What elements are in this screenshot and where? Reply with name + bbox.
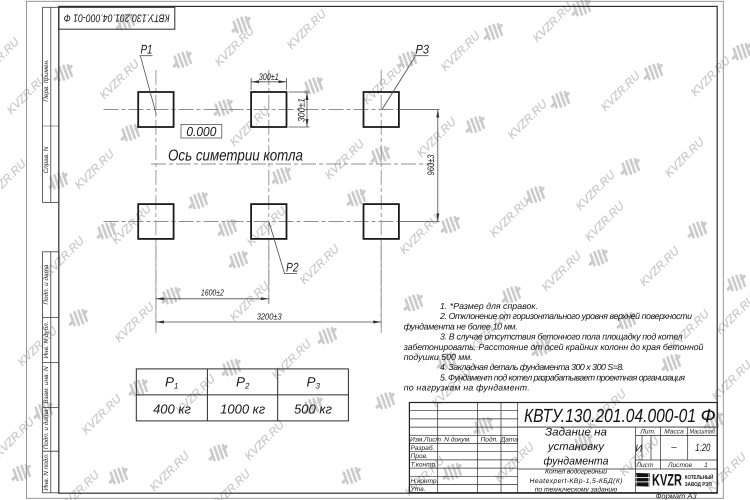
svg-text:Разраб.: Разраб. <box>411 445 435 452</box>
svg-text:–: – <box>670 442 677 453</box>
svg-text:P3: P3 <box>416 43 430 57</box>
svg-text:по нагрузкам на фундамент.: по нагрузкам на фундамент. <box>404 383 530 393</box>
svg-text:Масштаб: Масштаб <box>690 429 716 436</box>
svg-text:Ось симетрии котла: Ось симетрии котла <box>168 148 303 165</box>
svg-text:Листов: Листов <box>667 462 693 469</box>
svg-text:Подп. и дата: Подп. и дата <box>43 264 50 304</box>
svg-text:Изм.Лист: Изм.Лист <box>410 437 442 444</box>
svg-text:1:20: 1:20 <box>695 442 710 454</box>
svg-text:3. В случае отсутствия бетонн: 3. В случае отсутствия бетонного пола пл… <box>440 332 683 342</box>
svg-text:5. Фундамент под котел разраб: 5. Фундамент под котел разрабатывает про… <box>440 372 685 382</box>
svg-text:Лит.: Лит. <box>639 429 656 436</box>
svg-text:Формат А3: Формат А3 <box>655 491 697 500</box>
svg-text:Инв. N дубл.: Инв. N дубл. <box>43 322 50 359</box>
svg-text:забетонировать. Расстояние от: забетонировать. Расстояние от осей крайн… <box>403 342 704 352</box>
svg-text:Перв. примен.: Перв. примен. <box>43 59 50 101</box>
svg-text:P2: P2 <box>236 375 250 391</box>
svg-text:Лист: Лист <box>636 462 654 469</box>
svg-text:Т.контр.: Т.контр. <box>411 461 438 468</box>
svg-text:по техническому заданию: по техническому заданию <box>535 486 618 493</box>
svg-text:Heatexpert-КВр-1,5-КБД(К): Heatexpert-КВр-1,5-КБД(К) <box>530 478 623 485</box>
svg-text:Утв.: Утв. <box>410 486 426 493</box>
svg-text:Ф: Ф <box>700 406 715 427</box>
svg-text:Подп. и дата: Подп. и дата <box>43 409 50 449</box>
svg-text:960±3: 960±3 <box>426 154 437 176</box>
svg-text:Масса: Масса <box>664 429 684 436</box>
svg-text:Задание на: Задание на <box>545 427 607 439</box>
svg-text:Пров.: Пров. <box>411 453 429 460</box>
svg-text:Дата: Дата <box>500 437 519 444</box>
svg-text:500 кг: 500 кг <box>294 402 332 417</box>
svg-text:4. Закладная деталь фундамент: 4. Закладная деталь фундамента 300 x 300… <box>440 362 624 372</box>
svg-text:P3: P3 <box>307 375 321 391</box>
svg-text:фундамента не более 10 мм.: фундамента не более 10 мм. <box>404 321 518 331</box>
svg-text:ЗАВОД РЭП: ЗАВОД РЭП <box>685 482 712 488</box>
svg-text:КОТЕЛЬНЫЙ: КОТЕЛЬНЫЙ <box>685 473 714 481</box>
svg-text:установку: установку <box>547 441 606 453</box>
svg-text:1. *Размер для справок.: 1. *Размер для справок. <box>440 301 538 311</box>
svg-text:КВТУ.130.201.04.000-01 Ф: КВТУ.130.201.04.000-01 Ф <box>64 11 170 23</box>
svg-text:P1: P1 <box>165 375 178 391</box>
svg-text:2. Отклонение от горизонтальн: 2. Отклонение от горизонтального уровня … <box>439 311 692 321</box>
svg-text:3200±3: 3200±3 <box>257 312 282 322</box>
svg-text:400 кг: 400 кг <box>153 402 191 417</box>
svg-text:0.000: 0.000 <box>186 124 217 139</box>
svg-text:P2: P2 <box>286 260 299 274</box>
svg-text:1600±2: 1600±2 <box>201 287 224 297</box>
svg-text:300±1: 300±1 <box>259 72 279 83</box>
svg-text:Взам. инв. N: Взам. инв. N <box>43 366 50 404</box>
svg-text:Н.контр.: Н.контр. <box>411 478 439 485</box>
svg-text:1: 1 <box>704 462 708 469</box>
svg-text:300±1: 300±1 <box>297 98 308 122</box>
svg-text:P1: P1 <box>141 43 153 57</box>
svg-text:И: И <box>635 443 643 454</box>
svg-text:1000 кг: 1000 кг <box>220 402 266 417</box>
svg-text:Справ. N: Справ. N <box>43 146 50 173</box>
svg-text:подушки 500 мм.: подушки 500 мм. <box>404 352 473 362</box>
svg-text:N докум.: N докум. <box>444 437 471 444</box>
svg-text:КВТУ.130.201.04.000-01: КВТУ.130.201.04.000-01 <box>524 406 696 427</box>
svg-text:Инв. N подл.: Инв. N подл. <box>43 453 50 490</box>
svg-text:фундамента: фундамента <box>544 456 609 468</box>
svg-text:KVZR: KVZR <box>652 471 682 489</box>
svg-text:Подп.: Подп. <box>481 437 499 444</box>
svg-text:Котел водогрейный: Котел водогрейный <box>545 467 607 475</box>
